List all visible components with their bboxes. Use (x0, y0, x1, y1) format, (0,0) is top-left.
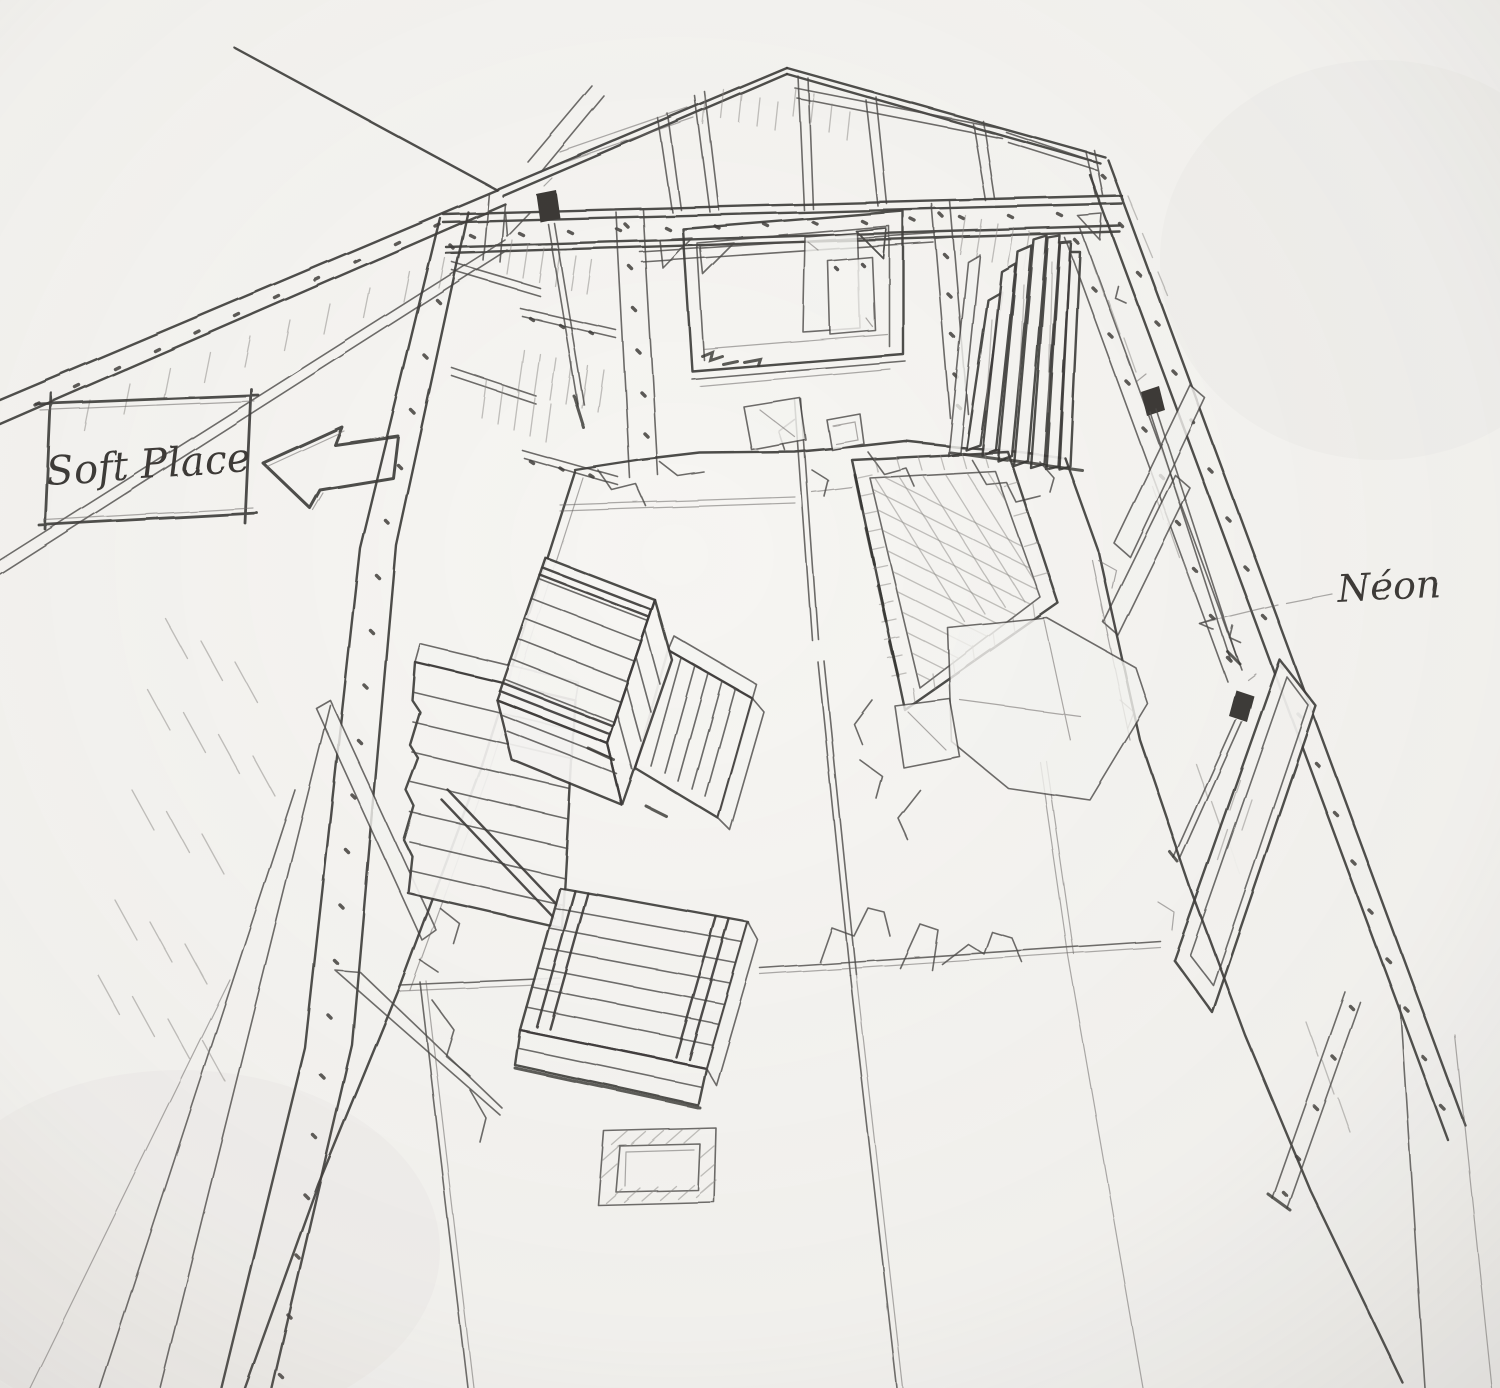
pencil-drawing: Soft Place Néon (0, 0, 1500, 1388)
sketch-canvas: Soft Place Néon (0, 0, 1500, 1388)
